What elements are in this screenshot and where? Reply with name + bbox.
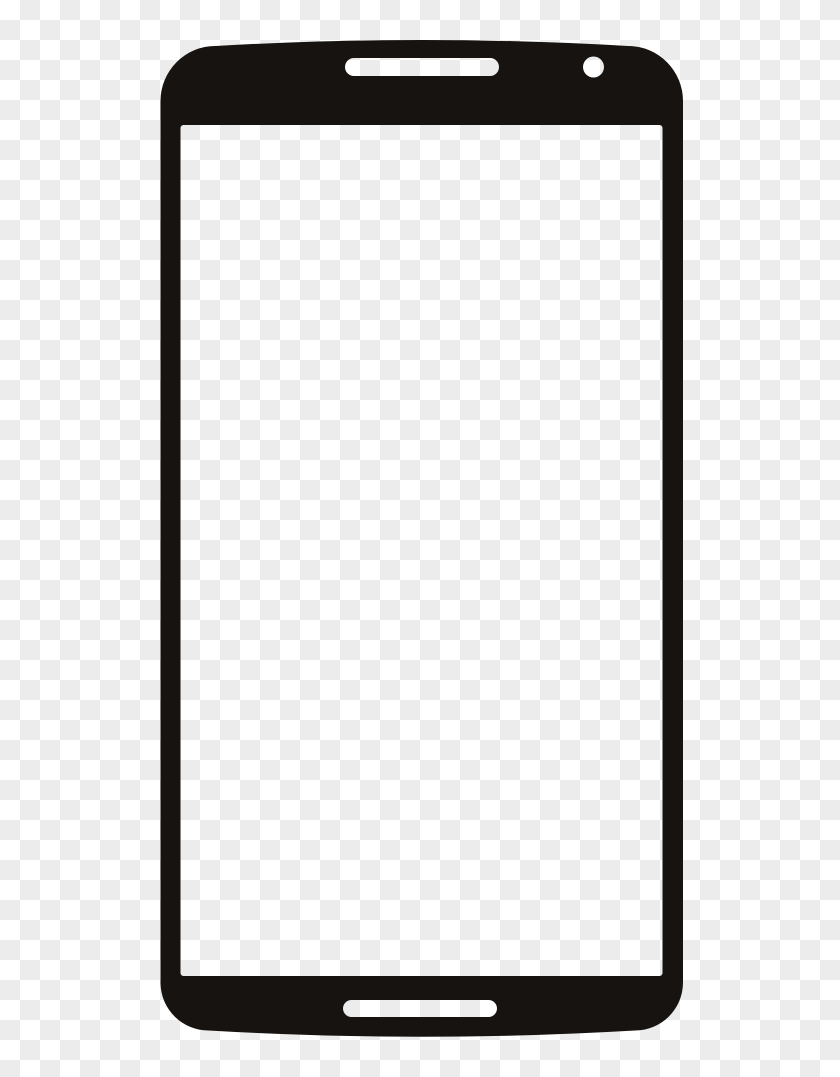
transparency-checkerboard-background — [0, 0, 840, 1077]
image-canvas — [0, 0, 840, 1077]
phone-clipart-graphic — [0, 0, 840, 1077]
